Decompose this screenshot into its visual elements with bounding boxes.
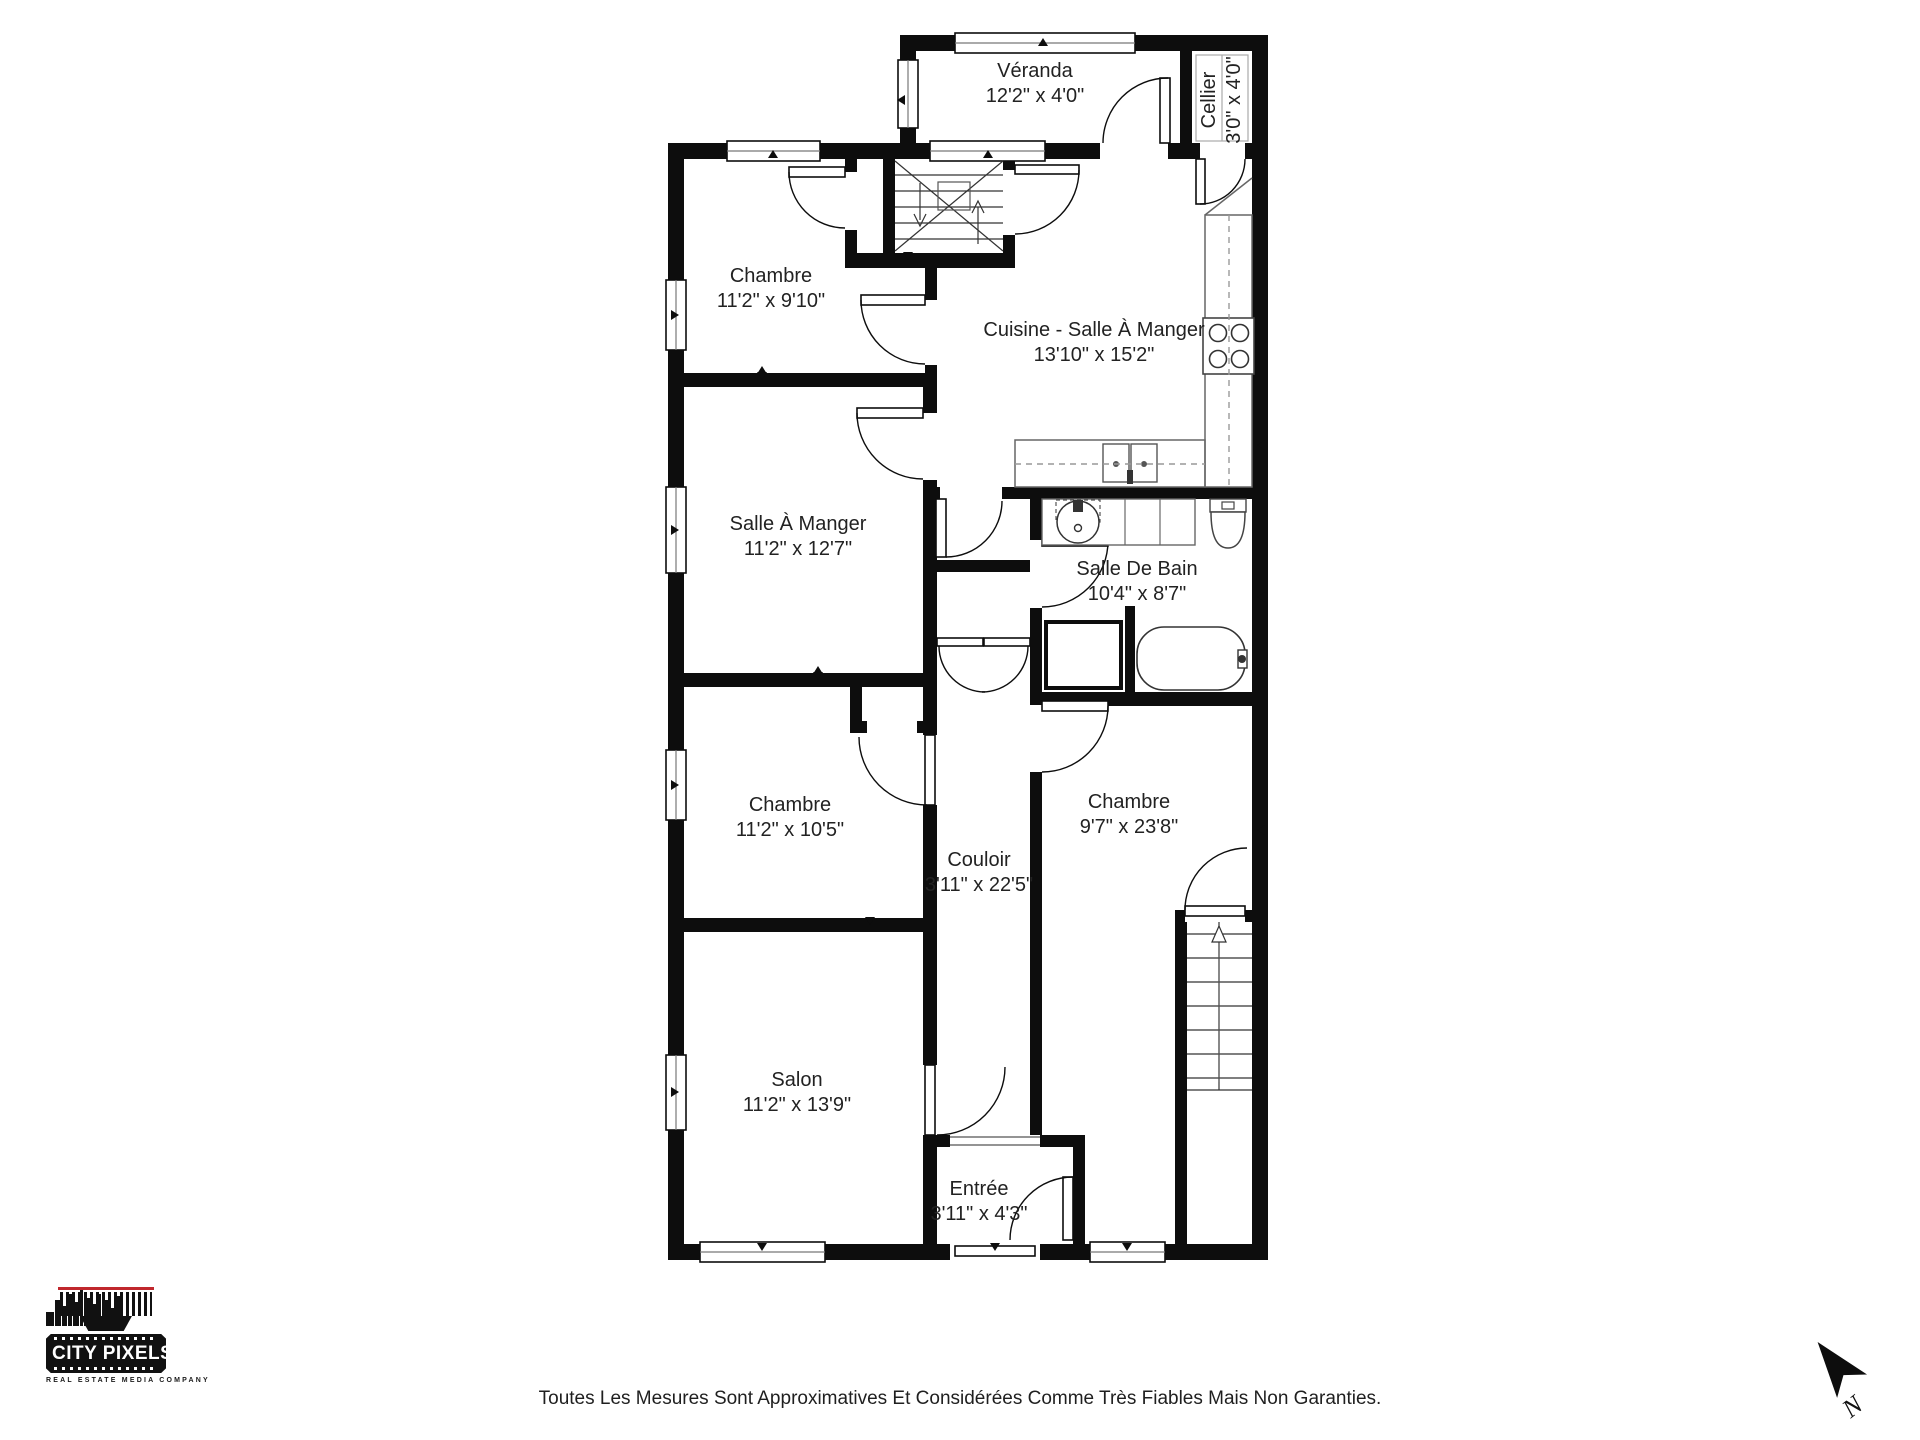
room-label-veranda: Véranda 12'2" x 4'0": [986, 59, 1085, 109]
room-dims: 11'2" x 9'10": [717, 289, 825, 314]
room-label-salle-a-manger: Salle À Manger 11'2" x 12'7": [730, 512, 867, 562]
room-name: Véranda: [986, 59, 1085, 84]
room-dims: 3'11" x 22'5": [925, 873, 1033, 898]
compass: N: [1786, 1330, 1916, 1440]
room-name: Salon: [743, 1068, 851, 1093]
room-name: Cellier: [1197, 56, 1222, 143]
room-label-cellier: Cellier 3'0" x 4'0": [1197, 56, 1247, 143]
room-dims: 3'11" x 4'3": [930, 1202, 1027, 1227]
room-dims: 11'2" x 12'7": [730, 537, 867, 562]
room-dims: 12'2" x 4'0": [986, 84, 1085, 109]
room-label-couloir: Couloir 3'11" x 22'5": [925, 848, 1033, 898]
room-label-chambre-1: Chambre 11'2" x 9'10": [717, 264, 825, 314]
logo-lens-shape: [80, 1316, 132, 1331]
room-label-cuisine: Cuisine - Salle À Manger 13'10" x 15'2": [983, 318, 1204, 368]
room-name: Salle À Manger: [730, 512, 867, 537]
room-name: Chambre: [736, 793, 844, 818]
logo-title: CITY PIXELS: [52, 1343, 160, 1365]
room-label-entree: Entrée 3'11" x 4'3": [930, 1177, 1027, 1227]
toilet-icon: [1210, 499, 1246, 548]
room-dims: 10'4" x 8'7": [1076, 582, 1197, 607]
room-name: Salle De Bain: [1076, 557, 1197, 582]
logo-badge: CITY PIXELS: [46, 1334, 166, 1373]
room-name: Chambre: [1080, 790, 1179, 815]
bathtub-icon: [1137, 627, 1247, 690]
room-label-salle-de-bain: Salle De Bain 10'4" x 8'7": [1076, 557, 1197, 607]
floorplan-page: Véranda 12'2" x 4'0" Cellier 3'0" x 4'0"…: [0, 0, 1920, 1440]
room-dims: 9'7" x 23'8": [1080, 815, 1179, 840]
room-name: Cuisine - Salle À Manger: [983, 318, 1204, 343]
logo-tagline: REAL ESTATE MEDIA COMPANY: [46, 1377, 166, 1384]
room-dims: 3'0" x 4'0": [1222, 56, 1247, 143]
room-name: Couloir: [925, 848, 1033, 873]
room-label-chambre-3: Chambre 9'7" x 23'8": [1080, 790, 1179, 840]
bathroom-closet: [1046, 622, 1121, 688]
room-dims: 11'2" x 10'5": [736, 818, 844, 843]
room-name: Chambre: [717, 264, 825, 289]
disclaimer-text: Toutes Les Mesures Sont Approximatives E…: [0, 1388, 1920, 1410]
room-dims: 11'2" x 13'9": [743, 1093, 851, 1118]
room-label-chambre-2: Chambre 11'2" x 10'5": [736, 793, 844, 843]
staircase-down-icon: [1187, 922, 1252, 1090]
room-label-salon: Salon 11'2" x 13'9": [743, 1068, 851, 1118]
staircase-up-icon: [895, 161, 1003, 251]
room-dims: 13'10" x 15'2": [983, 343, 1204, 368]
north-arrow-icon: [1786, 1330, 1916, 1440]
city-pixels-logo: CITY PIXELS REAL ESTATE MEDIA COMPANY: [46, 1286, 166, 1384]
room-name: Entrée: [930, 1177, 1027, 1202]
